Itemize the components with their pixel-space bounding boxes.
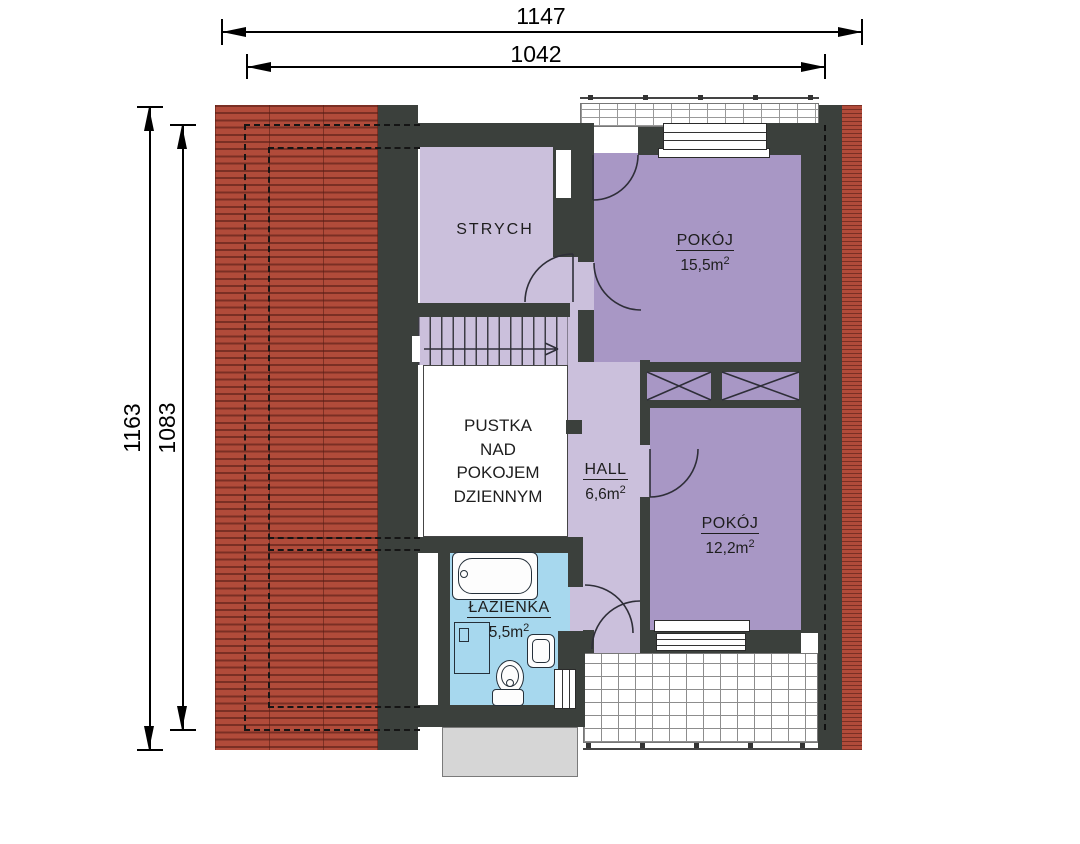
dim-line-left-outer [149, 107, 151, 750]
railing-post [588, 95, 593, 100]
pustka-line: PUSTKA [428, 414, 568, 438]
dim-label-top-outer: 1147 [491, 3, 591, 30]
roof-outline-dashed-inner [268, 147, 420, 708]
window-pokoj122 [656, 633, 746, 651]
room-label-lazienka: ŁAZIENKA 5,5m2 [450, 599, 568, 641]
dim-arrow-up-icon [177, 125, 187, 149]
wardrobe-box-1 [645, 370, 713, 402]
dim-arrow-down-icon [177, 706, 187, 730]
toilet-tank [492, 689, 524, 706]
dim-arrow-right-icon [801, 62, 825, 72]
room-name: POKÓJ [645, 232, 765, 251]
dim-arrow-right-icon [838, 27, 862, 37]
dim-line-top-outer [222, 31, 862, 33]
dim-tick [170, 729, 196, 731]
railing-post [753, 95, 758, 100]
wall-wardrobe-top [645, 362, 801, 370]
railing-post [694, 743, 699, 748]
dim-label-top-inner: 1042 [486, 41, 586, 68]
wall-corner-top-right [819, 105, 842, 147]
window-sill-bottom [654, 620, 750, 632]
wall-strych-top [418, 123, 594, 147]
dim-tick [137, 749, 163, 751]
terrace-railing [583, 748, 818, 750]
pustka-line: NAD [428, 438, 568, 462]
window-pokoj155 [663, 123, 767, 150]
dim-tick [137, 106, 163, 108]
chimney-block [442, 727, 578, 777]
railing-post [800, 743, 805, 748]
wall-pokoj155-left-upper [578, 123, 594, 262]
roof-edge-dashed-right [824, 125, 826, 730]
railing-post [643, 95, 648, 100]
room-name: ŁAZIENKA [450, 599, 568, 618]
staircase [418, 317, 568, 365]
room-area: 12,2m2 [670, 536, 790, 557]
room-label-pokoj-155: POKÓJ 15,5m2 [645, 232, 765, 274]
wardrobe-box-2 [720, 370, 801, 402]
wall-bathroom-top [418, 537, 583, 553]
window-bathroom [554, 669, 576, 709]
wall-strych-bottom [418, 303, 570, 317]
room-name: STRYCH [430, 221, 560, 238]
room-name: POKÓJ [670, 515, 790, 534]
dim-tick [246, 54, 248, 79]
room-label-hall: HALL 6,6m2 [568, 461, 643, 503]
pustka-line: DZIENNYM [428, 485, 568, 509]
dim-arrow-down-icon [144, 726, 154, 750]
room-name: HALL [568, 461, 643, 480]
room-area: 6,6m2 [568, 482, 643, 503]
wall-pokoj155-left-lower [578, 310, 594, 362]
wall-pier-void-edge [566, 420, 582, 434]
wall-hall-pokoj122-lower [640, 497, 650, 630]
dim-label-left-outer: 1163 [119, 398, 143, 458]
wall-right-bottom [818, 633, 842, 750]
dim-line-left-inner [182, 125, 184, 730]
railing-post [640, 743, 645, 748]
dim-tick [221, 19, 223, 45]
dim-arrow-left-icon [222, 27, 246, 37]
toilet-detail [506, 679, 514, 687]
wall-notch [412, 336, 420, 362]
room-label-pustka: PUSTKA NAD POKOJEM DZIENNYM [428, 414, 568, 508]
dim-tick [861, 19, 863, 45]
room-label-pokoj-122: POKÓJ 12,2m2 [670, 515, 790, 557]
dim-arrow-up-icon [144, 107, 154, 131]
room-label-strych: STRYCH [430, 221, 560, 238]
balcony-door-threshold [594, 127, 638, 153]
wall-wardrobe-bottom [645, 402, 801, 408]
dim-label-left-inner: 1083 [154, 398, 178, 458]
terrace-tiles [583, 653, 818, 743]
hidden-wall-dashed [268, 549, 420, 551]
floor-plan: 1147 1042 1163 1083 [0, 0, 1080, 844]
wall-bathroom-right-upper [568, 553, 583, 587]
room-area: 15,5m2 [645, 253, 765, 274]
hidden-wall-dashed [268, 537, 420, 539]
dim-tick [824, 54, 826, 79]
railing-post [808, 95, 813, 100]
wall-terrace-door-pier-left [583, 630, 594, 653]
wall-right [801, 147, 842, 633]
wall-bathroom-left [438, 553, 450, 705]
roof-right [842, 105, 862, 750]
railing-post [698, 95, 703, 100]
dim-tick [170, 124, 196, 126]
wall-niche [556, 150, 571, 198]
bathtub-inner [458, 558, 532, 594]
pustka-line: POKOJEM [428, 461, 568, 485]
room-area: 5,5m2 [450, 620, 568, 641]
railing-post [586, 743, 591, 748]
bathtub-drain-icon [460, 570, 468, 578]
sink-basin [532, 639, 550, 663]
wall-wardrobe-divider [713, 370, 720, 402]
dim-arrow-left-icon [247, 62, 271, 72]
railing-post [748, 743, 753, 748]
